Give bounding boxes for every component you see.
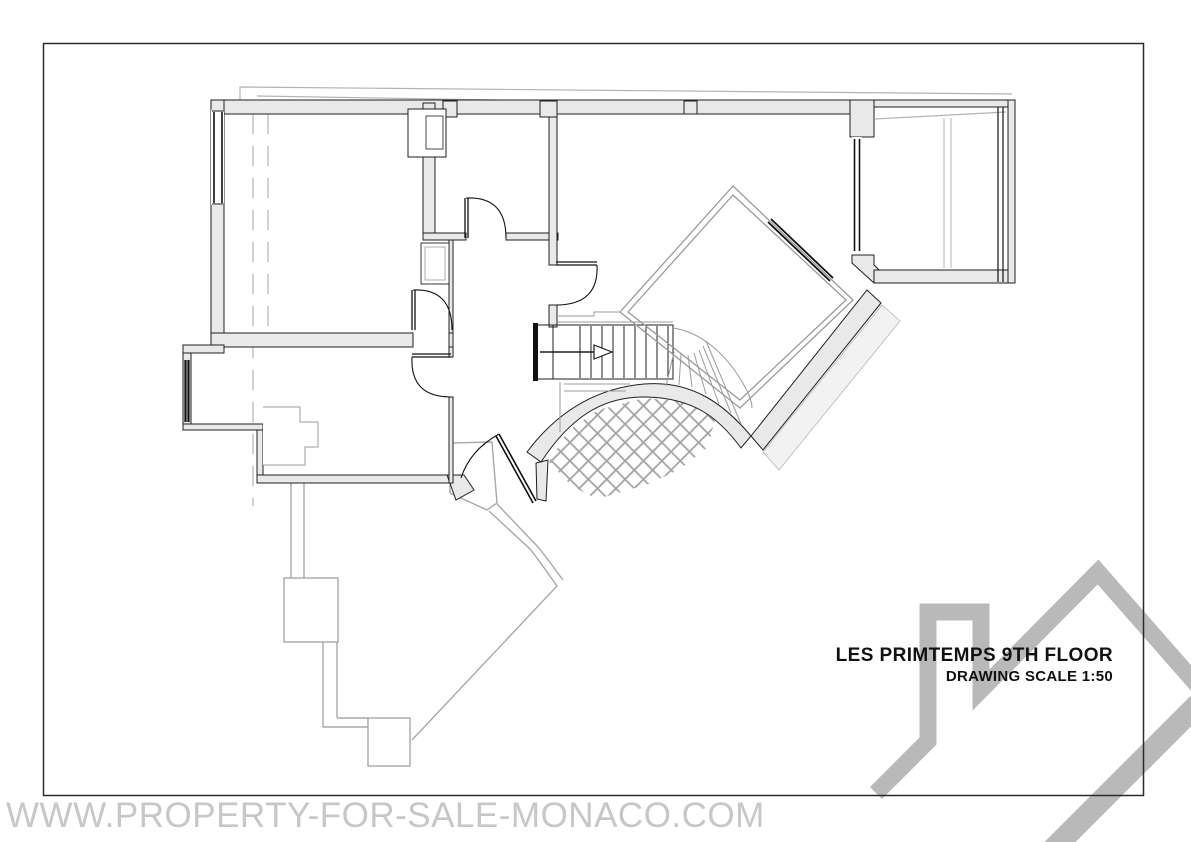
wall-tab (684, 101, 697, 114)
floor-plan-drawing (0, 0, 1191, 842)
room-divider-wall (211, 333, 413, 347)
door-hall-to-salon (556, 262, 597, 305)
kitchen-niche (263, 407, 318, 465)
door-terrace-angled (461, 434, 536, 503)
title-block: LES PRIMTEMPS 9TH FLOOR DRAWING SCALE 1:… (836, 645, 1113, 686)
window-wall-top (850, 100, 874, 137)
drawing-title: LES PRIMTEMPS 9TH FLOOR (836, 645, 1113, 667)
hallway-east-wall (549, 114, 557, 265)
door-living-room (412, 290, 452, 330)
alcove-top-wall (183, 345, 224, 353)
stairs (533, 323, 673, 381)
balcony-right-wall (1008, 100, 1015, 283)
planter (368, 718, 410, 766)
diagonal-wall (751, 290, 881, 450)
bottom-wall (257, 475, 453, 483)
alcove-bottom-wall (183, 424, 263, 430)
door-arc (556, 265, 597, 305)
balcony-top-wall (862, 100, 1015, 107)
door-arc (412, 357, 451, 397)
floor-plan-page: LES PRIMTEMPS 9TH FLOOR DRAWING SCALE 1:… (0, 0, 1191, 842)
fixtures (263, 109, 449, 465)
watermark: WWW.PROPERTY-FOR-SALE-MONACO.COM (6, 796, 765, 836)
wall-tab (540, 101, 557, 117)
terrace-edge-2 (497, 504, 563, 580)
door-arc (413, 290, 452, 330)
terrace-path-left (291, 483, 304, 578)
planter (284, 578, 338, 642)
bathroom-south-wall (423, 233, 466, 240)
balcony-walkway (763, 305, 900, 470)
alcove-left-wall (183, 353, 191, 424)
window-gap (852, 137, 862, 253)
drawing-scale: DRAWING SCALE 1:50 (836, 668, 1113, 686)
balcony-glazing (998, 107, 1003, 282)
door-arc (466, 198, 506, 238)
top-wall (211, 100, 862, 114)
door-stub (536, 460, 548, 501)
balcony-bottom-wall (874, 270, 1015, 283)
terrace-outline (284, 442, 563, 766)
door-bedroom (412, 354, 451, 397)
door-bathroom (465, 198, 506, 238)
terrace-edge (412, 511, 557, 740)
